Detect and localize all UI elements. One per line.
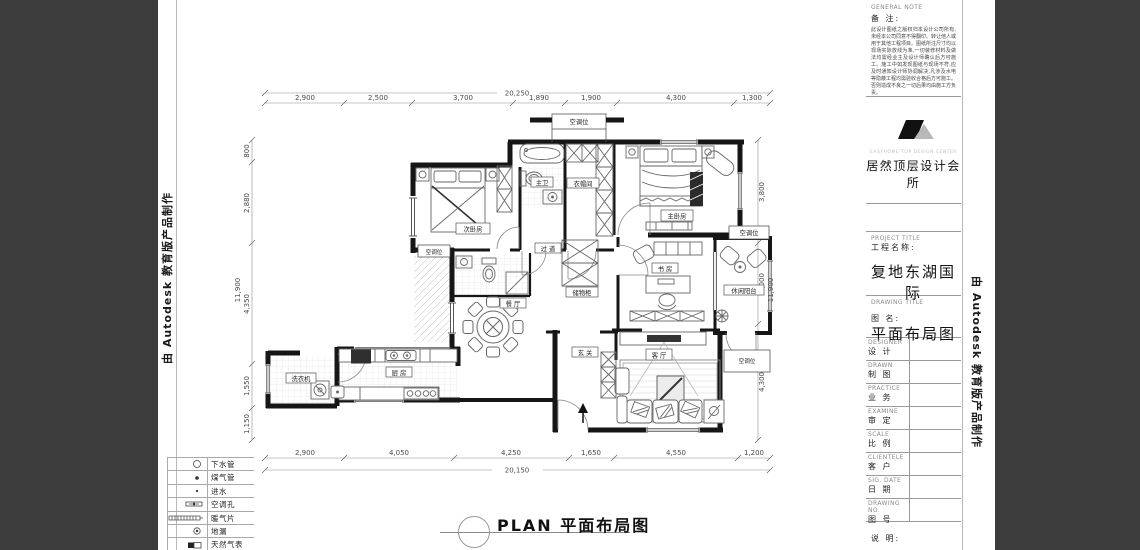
dim-bottom-overall: 20,150 (505, 467, 530, 475)
drawing-title-zh: 图 名: (871, 314, 900, 323)
general-note-en: GENERAL NOTE (871, 4, 956, 11)
legend-row: 进水 (168, 485, 254, 498)
dim-left-seg: 4,350 (243, 294, 251, 314)
label-laundry: 洗衣机 (286, 373, 316, 383)
tb-row-clientele: CLIENTELE客 户 (866, 453, 961, 476)
label-study: 书 房 (652, 263, 678, 273)
svg-text:客 厅: 客 厅 (652, 351, 667, 360)
svg-text:洗衣机: 洗衣机 (292, 374, 312, 383)
legend-label: 下水管 (208, 458, 254, 470)
dim-top-overall: 20,250 (505, 90, 530, 98)
project-title-en: PROJECT TITLE (871, 235, 956, 242)
svg-text:餐 厅: 餐 厅 (506, 299, 521, 308)
dim-top-seg: 1,900 (581, 94, 601, 102)
dim-right-seg: 3,800 (758, 182, 766, 202)
drain-pipe-icon (190, 459, 204, 469)
label-ac-left: 空调位 (426, 248, 443, 256)
project-title-zh: 工程名称: (871, 242, 956, 253)
legend-row: 暖气片 (168, 512, 254, 525)
furniture-study (630, 242, 704, 321)
dim-top-seg: 2,900 (295, 94, 315, 102)
spacer-row (866, 204, 961, 232)
svg-text:主卧房: 主卧房 (668, 212, 687, 221)
legend-label: 天然气表 (208, 538, 254, 550)
label-dining: 餐 厅 (500, 298, 526, 308)
legend-row: 地漏 (168, 525, 254, 538)
tb-row-drawing-no: DRAWING NO.图 号 (866, 499, 961, 522)
dim-top-seg: 2,500 (368, 94, 388, 102)
svg-text:次卧房: 次卧房 (464, 225, 483, 234)
legend-row: 下水管 (168, 458, 254, 471)
label-ac-right: 空调位 (740, 228, 760, 237)
dim-right-seg: 4,300 (758, 372, 766, 392)
legend-label: 空调孔 (208, 498, 254, 510)
label-master: 主卧房 (661, 210, 693, 221)
svg-text:储物柜: 储物柜 (573, 288, 592, 297)
remark-section: 说 明: (866, 522, 961, 549)
label-ac-top: 空调位 (570, 117, 590, 126)
dim-bottom-seg: 1,200 (744, 449, 764, 457)
general-note-zh: 备 注: (871, 13, 956, 24)
legend-row: 天然气表 (168, 538, 254, 550)
svg-text:主卫: 主卫 (536, 178, 549, 187)
tb-row-practice: PRACTICE业 务 (866, 384, 961, 407)
gas-meter-icon (186, 540, 204, 550)
dim-left-seg: 1,550 (243, 376, 251, 396)
furniture-entry (578, 352, 616, 423)
project-section: PROJECT TITLE 工程名称: 复地东湖国际 (866, 232, 961, 296)
remark-label: 说 明: (871, 534, 900, 543)
svg-text:过 道: 过 道 (541, 244, 556, 253)
drawing-title-section: DRAWING TITLE 图 名: 平面布局图 (866, 296, 961, 338)
company-name: 居然顶层设计会所 (866, 157, 961, 191)
dim-bottom-seg: 4,550 (666, 449, 686, 457)
dim-bottom-seg: 2,900 (295, 449, 315, 457)
general-note-body: 此设计图纸之版权归本设计公司所有,未经本公司同意不得翻印、转让他人或用于其他工程… (871, 27, 956, 97)
label-leisure-balcony: 休闲阳台 (724, 285, 764, 295)
dim-bottom-seg: 4,050 (389, 449, 409, 457)
legend-label: 暖气片 (208, 512, 254, 524)
dim-left-seg: 2,880 (243, 193, 251, 213)
tb-row-drawn: DRAWN制 图 (866, 361, 961, 384)
water-inlet-icon (190, 486, 204, 496)
company-logo-icon (866, 115, 961, 145)
furniture-cloakroom (566, 144, 613, 236)
label-cloak: 衣帽间 (567, 178, 599, 188)
svg-text:厨 房: 厨 房 (392, 368, 407, 377)
legend-row: 煤气管 (168, 471, 254, 484)
legend-row: 空调孔 (168, 498, 254, 511)
tb-row-scale: SCALE比 例 (866, 430, 961, 453)
svg-text:衣帽间: 衣帽间 (574, 179, 593, 188)
general-note-section: GENERAL NOTE 备 注: 此设计图纸之版权归本设计公司所有,未经本公司… (866, 0, 961, 97)
ac-hole-icon (184, 499, 204, 509)
furniture-storage-cabinet (562, 240, 598, 286)
legend-label: 煤气管 (208, 471, 254, 483)
footer-bubble-icon (458, 516, 490, 548)
title-block: GENERAL NOTE 备 注: 此设计图纸之版权归本设计公司所有,未经本公司… (866, 0, 961, 550)
svg-text:玄 关: 玄 关 (578, 348, 593, 357)
svg-text:书 房: 书 房 (658, 264, 673, 273)
gas-pipe-icon (190, 473, 204, 483)
dim-top-seg: 1,300 (742, 94, 762, 102)
cad-sheet: 由 Autodesk 教育版产品制作 由 Autodesk 教育版产品制作 (0, 0, 1140, 550)
dim-left-seg: 1,150 (243, 414, 251, 434)
label-bedroom2: 次卧房 (456, 223, 490, 234)
tb-row-date: SIG. DATE日 期 (866, 476, 961, 499)
dim-bottom-seg: 1,650 (581, 449, 601, 457)
tb-row-examine: EXAMINE审 定 (866, 407, 961, 430)
furniture-bedroom2 (416, 166, 512, 232)
logo-section: EASYHOME TOP DESIGN CENTER 居然顶层设计会所 (866, 97, 961, 204)
room-labels: 空调位 空调位 空调位 空调位 次卧房 主卫 衣帽间 主卧房 过 道 书 房 休… (286, 117, 764, 383)
pipe-legend: 下水管 煤气管 进水 空调孔 暖气片 地漏 天然气表 (167, 457, 254, 550)
label-ac-living: 空调位 (739, 357, 756, 365)
label-living: 客 厅 (646, 349, 672, 360)
legend-label: 地漏 (208, 525, 254, 537)
label-kitchen: 厨 房 (386, 367, 412, 377)
label-entry: 玄 关 (572, 347, 598, 357)
label-cabinet: 储物柜 (566, 287, 598, 297)
dim-top-seg: 1,890 (529, 94, 549, 102)
dim-top-seg: 4,300 (666, 94, 686, 102)
label-master-bath: 主卫 (531, 177, 553, 187)
radiator-icon (168, 513, 204, 523)
dim-left-overall: 11,900 (234, 278, 242, 303)
floor-drain-icon (190, 526, 204, 536)
label-corridor: 过 道 (535, 243, 561, 253)
legend-label: 进水 (208, 485, 254, 497)
drawing-title-en: DRAWING TITLE (871, 299, 956, 306)
svg-text:休闲阳台: 休闲阳台 (731, 286, 756, 295)
dim-top-seg: 3,700 (453, 94, 473, 102)
dim-bottom-seg: 4,250 (501, 449, 521, 457)
logo-en: EASYHOME TOP DESIGN CENTER (866, 150, 961, 155)
plan-caption: PLAN 平面布局图 (497, 512, 650, 536)
dim-left-seg: 800 (243, 144, 251, 157)
